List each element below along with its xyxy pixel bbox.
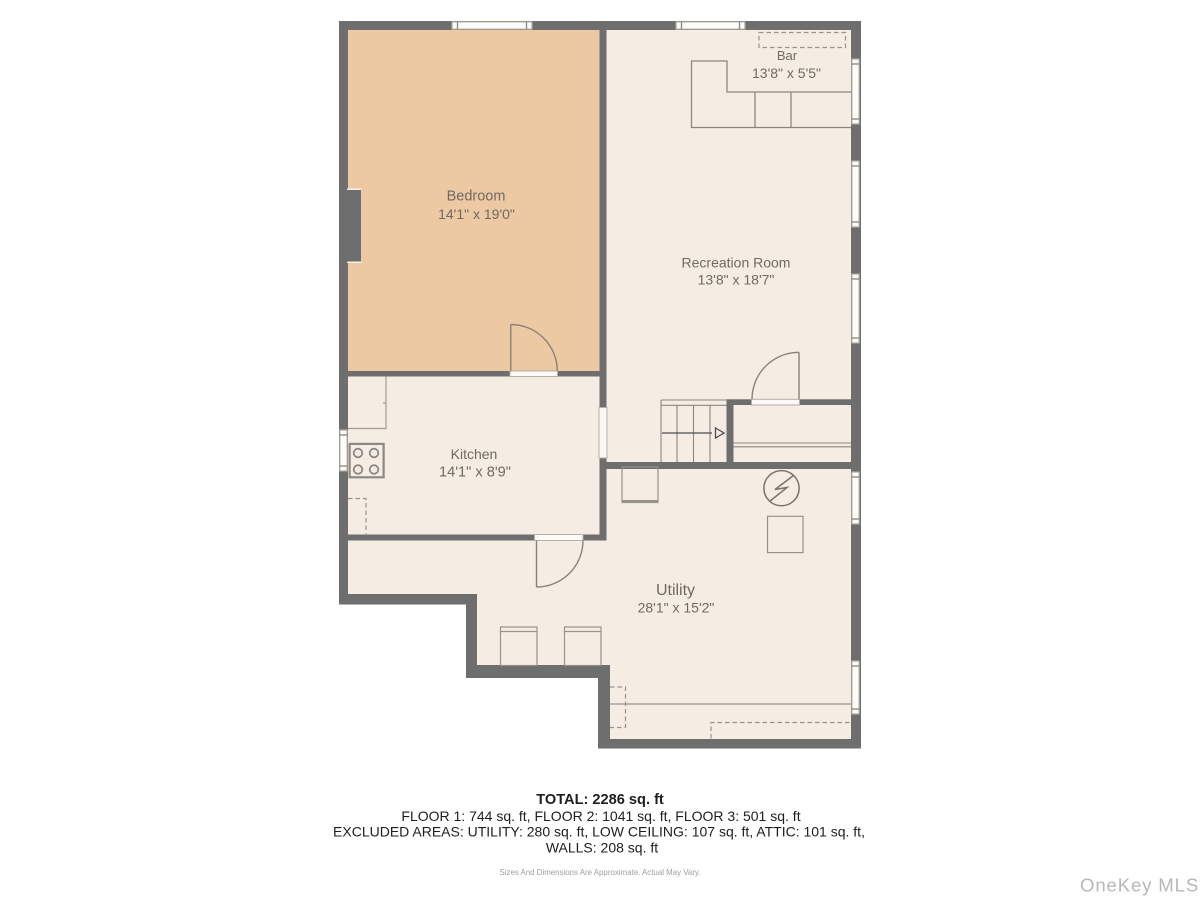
svg-text:14'1" x 8'9": 14'1" x 8'9" (439, 465, 511, 481)
svg-text:FLOOR 1: 744 sq. ft, FLOOR 2:: FLOOR 1: 744 sq. ft, FLOOR 2: 1041 sq. f… (401, 808, 800, 824)
svg-text:Kitchen: Kitchen (451, 446, 498, 462)
svg-text:TOTAL: 2286 sq. ft: TOTAL: 2286 sq. ft (536, 792, 664, 808)
svg-text:EXCLUDED AREAS: UTILITY: 280 s: EXCLUDED AREAS: UTILITY: 280 sq. ft, LOW… (333, 824, 865, 840)
svg-text:Bar: Bar (777, 48, 798, 63)
svg-text:Recreation Room: Recreation Room (682, 254, 791, 270)
svg-text:WALLS: 208 sq. ft: WALLS: 208 sq. ft (546, 840, 658, 856)
svg-text:28'1" x 15'2": 28'1" x 15'2" (638, 599, 715, 615)
svg-text:13'8" x 5'5": 13'8" x 5'5" (752, 65, 821, 81)
svg-text:OneKey MLS: OneKey MLS (1080, 875, 1199, 896)
svg-text:Sizes And Dimensions Are Appro: Sizes And Dimensions Are Approximate. Ac… (499, 868, 700, 877)
svg-text:14'1" x 19'0": 14'1" x 19'0" (438, 206, 515, 222)
svg-text:13'8" x 18'7": 13'8" x 18'7" (698, 271, 775, 287)
svg-text:Bedroom: Bedroom (447, 189, 506, 205)
svg-text:Utility: Utility (656, 582, 695, 599)
